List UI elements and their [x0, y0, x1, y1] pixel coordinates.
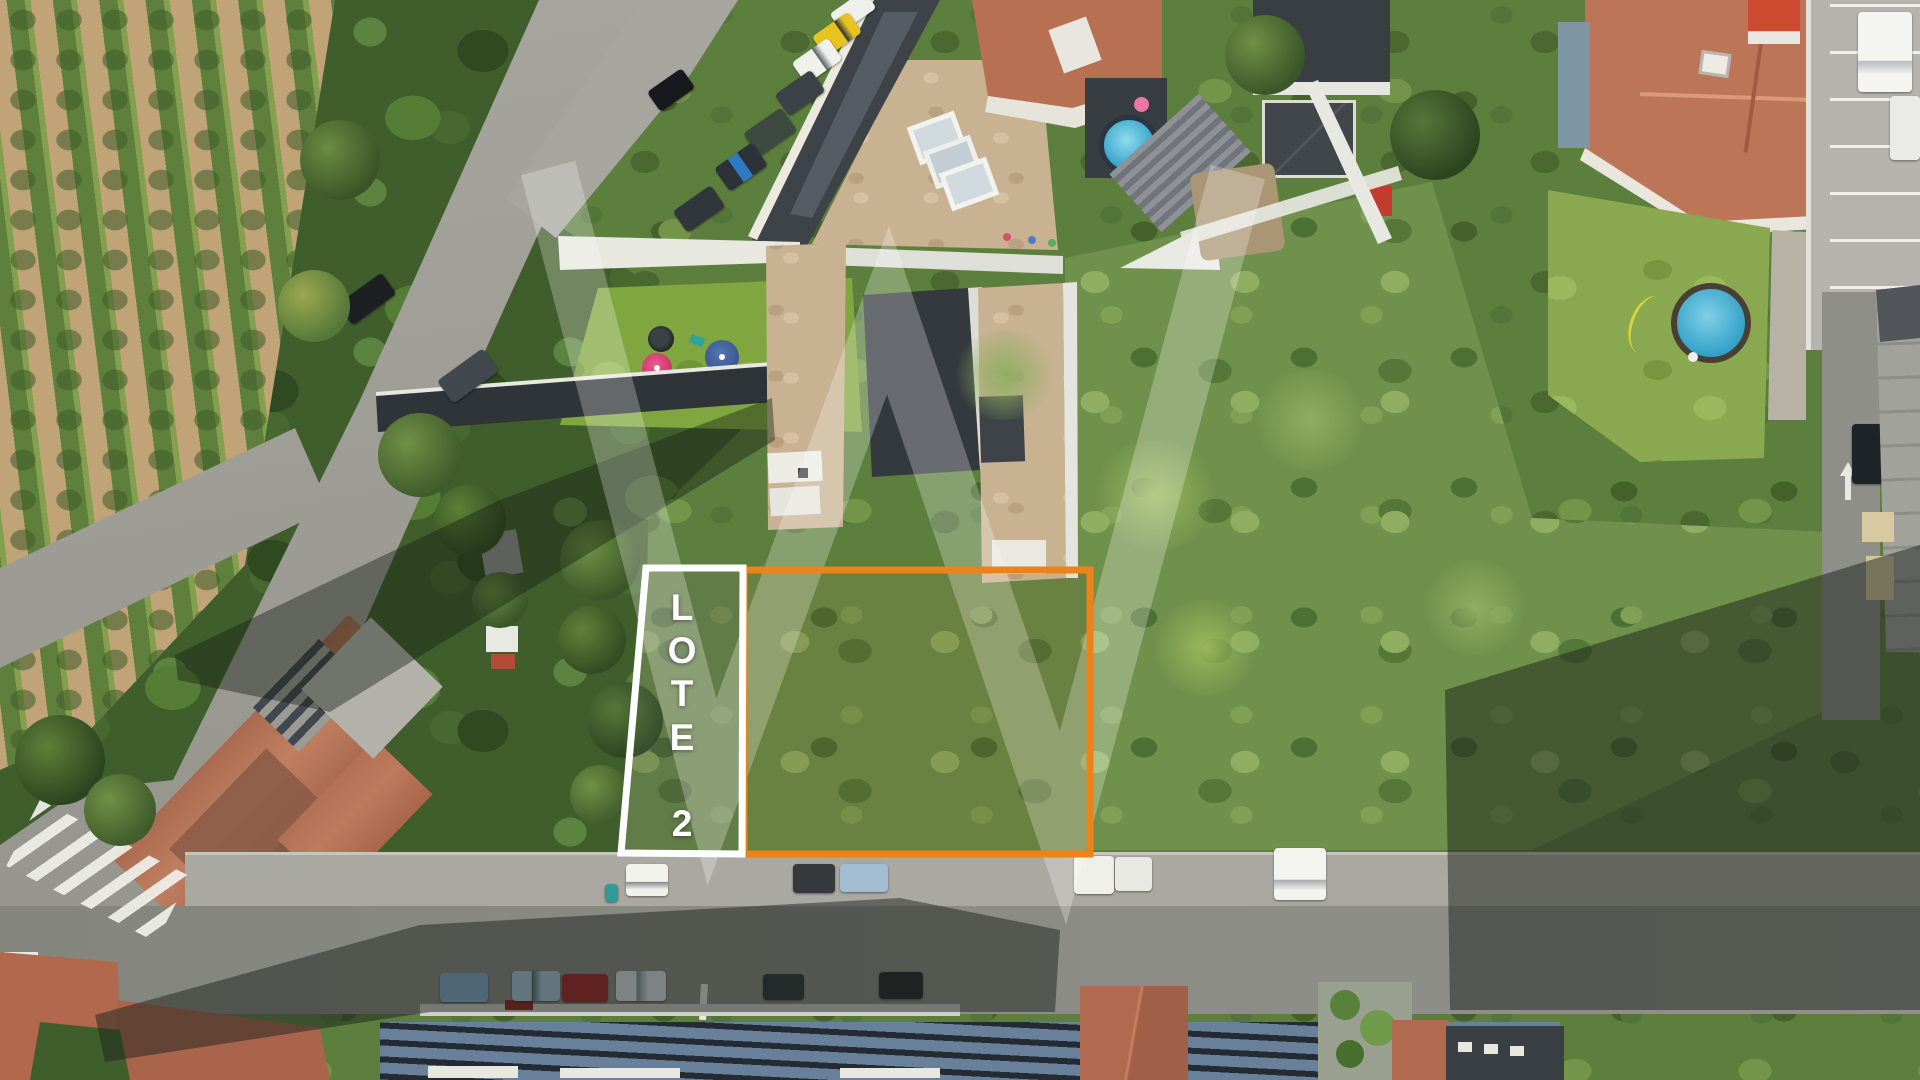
- lot2-label-letter: T: [662, 675, 702, 712]
- tree-canopy: [570, 765, 630, 825]
- lightblue-car: [840, 864, 888, 892]
- courtyard-shrub: [1330, 990, 1360, 1020]
- field-light-patch: [950, 330, 1060, 420]
- white-car-parked: [1890, 96, 1920, 160]
- white-van-parked: [1858, 12, 1912, 92]
- tree-canopy: [1390, 90, 1480, 180]
- solar-roof-white-bit: [560, 1068, 680, 1078]
- lot2-label-letter: L: [662, 589, 702, 626]
- fire-pit: [648, 326, 674, 352]
- tree-canopy: [278, 270, 350, 342]
- courtyard-shrub: [1360, 1010, 1396, 1046]
- field-light-patch: [1090, 440, 1220, 550]
- teal-bin: [605, 884, 618, 902]
- courtyard-shrub: [1336, 1040, 1364, 1068]
- lot2-label-letter: E: [662, 719, 702, 756]
- red-truck: [1748, 0, 1800, 44]
- path-west-vent: [798, 468, 808, 478]
- terrace-person-dot: [1003, 233, 1011, 241]
- terrace-person-dot: [1028, 236, 1036, 244]
- field-light-patch: [1420, 560, 1530, 655]
- tree-canopy: [1225, 15, 1305, 95]
- tree-canopy: [84, 774, 156, 846]
- pink-float: [1134, 97, 1149, 112]
- solar-roof-white-bit: [840, 1068, 940, 1078]
- tree-canopy: [378, 413, 462, 497]
- tan-awning: [1862, 512, 1894, 542]
- tree-canopy: [1385, 215, 1461, 291]
- shed-red-roof: [491, 654, 515, 669]
- roof-wing-east-white: [992, 540, 1046, 574]
- roof-dark-bottomright: [1446, 1026, 1564, 1080]
- house-east-skylight: [1698, 50, 1731, 78]
- pink-umbrella-center: [654, 365, 660, 371]
- tree-canopy: [587, 682, 663, 758]
- lot2-label-letter: 2: [662, 805, 702, 842]
- path-west-structure: [767, 451, 822, 484]
- tree-canopy: [300, 120, 380, 200]
- black-car-driveway: [1852, 424, 1884, 484]
- tree-canopy: [558, 606, 626, 674]
- round-pool-east: [1671, 283, 1751, 363]
- roof-skylight-dot: [1484, 1044, 1498, 1054]
- field-light-patch: [1250, 370, 1370, 470]
- roof-skylight-dot: [1458, 1042, 1472, 1052]
- house-bottomright-terracotta2: [1392, 1020, 1448, 1080]
- shed-white: [486, 626, 518, 652]
- lot2-label-letter: O: [662, 632, 702, 669]
- path-west-structure: [769, 486, 820, 517]
- field-light-patch: [1150, 600, 1260, 695]
- blue-umbrella-center: [719, 354, 725, 360]
- house-bottomright-terracotta: [1080, 986, 1188, 1080]
- road-arrow-stem: [1845, 474, 1851, 500]
- parking-curb: [1806, 0, 1811, 350]
- dark-car: [793, 864, 835, 893]
- white-car: [1074, 856, 1114, 894]
- solar-roof-white-bit: [428, 1066, 518, 1078]
- aerial-photo: L O T E 2: [0, 0, 1920, 1080]
- roof-skylight-dot: [1510, 1046, 1524, 1056]
- house-east-bluewall: [1558, 22, 1590, 148]
- pool-toy-white: [1688, 352, 1698, 362]
- white-car: [626, 864, 668, 896]
- white-car: [1115, 857, 1152, 891]
- terrace-person-dot: [1048, 239, 1056, 247]
- white-van: [1274, 848, 1326, 900]
